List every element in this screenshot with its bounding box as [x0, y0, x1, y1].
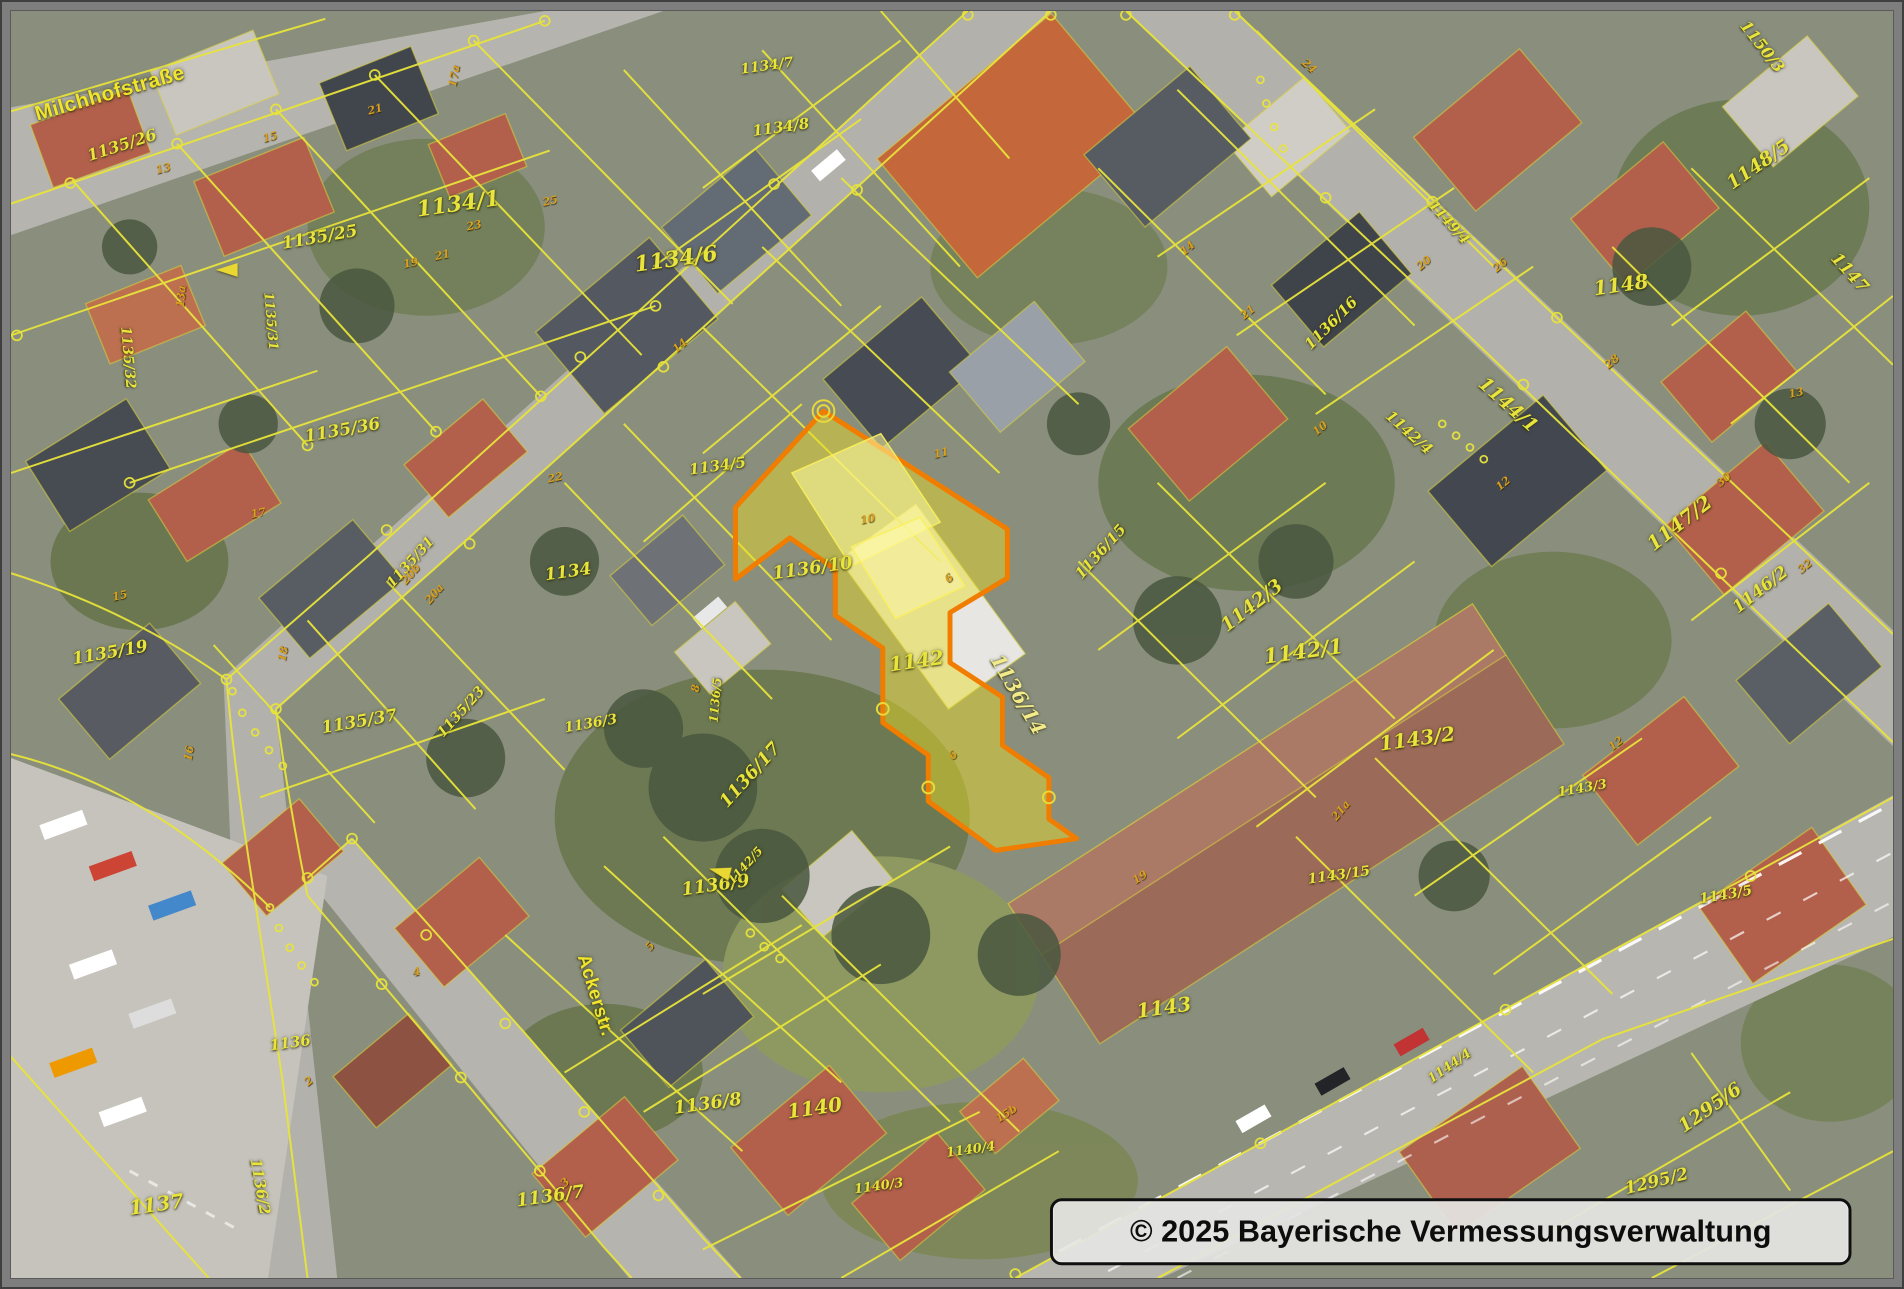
map-frame: © 2025 Bayerische Vermessungsverwaltung …: [0, 0, 1904, 1289]
aerial-basemap: [11, 11, 1893, 1278]
map-viewport[interactable]: © 2025 Bayerische Vermessungsverwaltung …: [11, 11, 1893, 1278]
